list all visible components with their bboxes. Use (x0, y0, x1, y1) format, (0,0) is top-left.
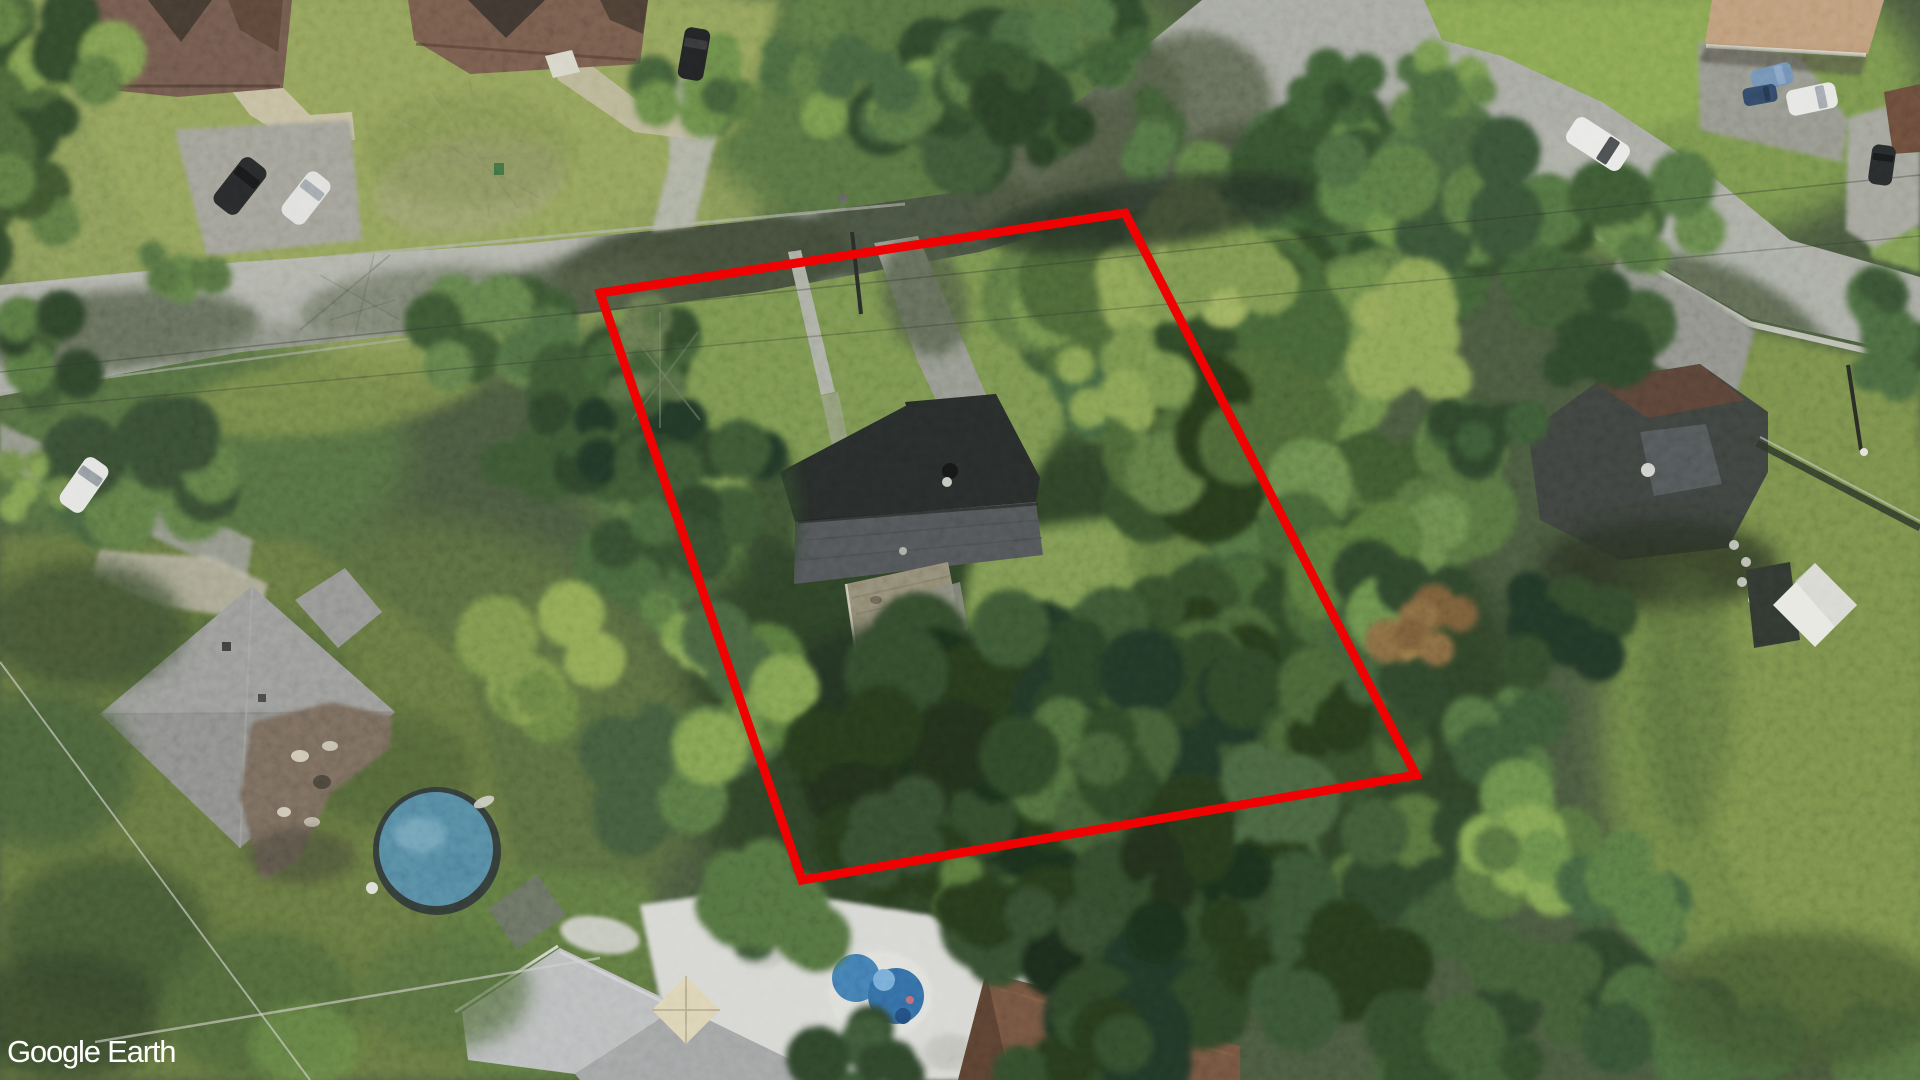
svg-text:Google Earth: Google Earth (7, 1034, 175, 1069)
